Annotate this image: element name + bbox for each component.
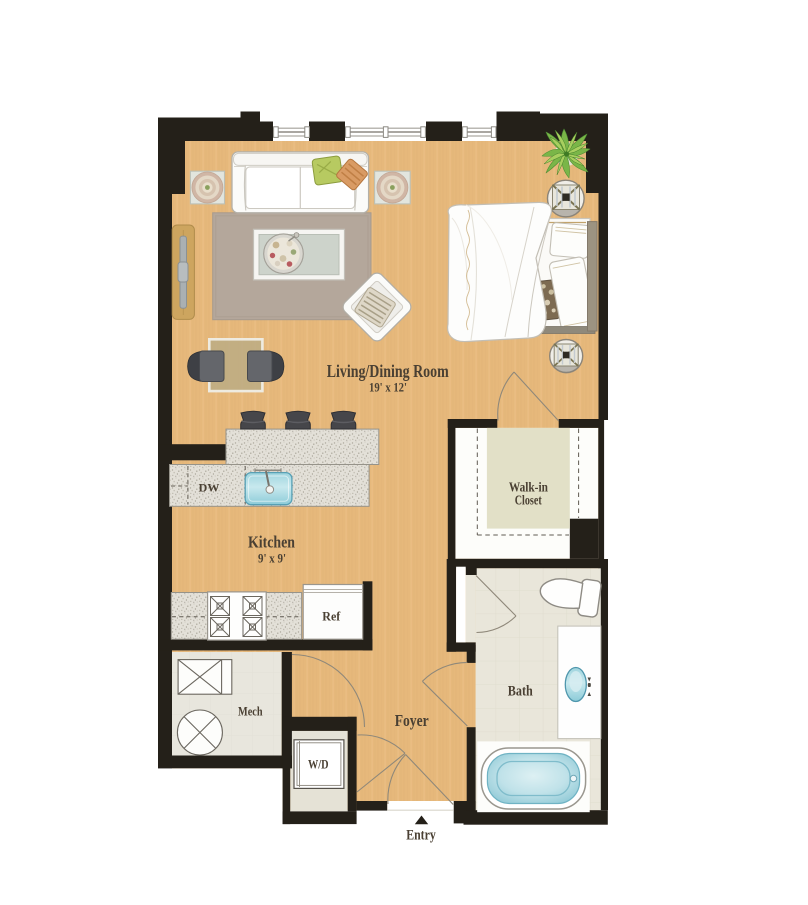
svg-text:Mech: Mech: [238, 705, 263, 719]
svg-text:Kitchen: Kitchen: [248, 533, 295, 552]
svg-text:Foyer: Foyer: [395, 711, 429, 730]
svg-text:Entry: Entry: [406, 828, 436, 844]
svg-text:Closet: Closet: [515, 494, 542, 509]
svg-text:Living/Dining Room: Living/Dining Room: [327, 361, 449, 381]
svg-text:DW: DW: [199, 481, 220, 495]
svg-text:Bath: Bath: [508, 684, 533, 700]
svg-text:W/D: W/D: [308, 758, 329, 772]
svg-text:19' x 12': 19' x 12': [369, 380, 407, 395]
svg-text:Ref: Ref: [322, 610, 341, 624]
svg-text:9' x 9': 9' x 9': [258, 551, 286, 566]
